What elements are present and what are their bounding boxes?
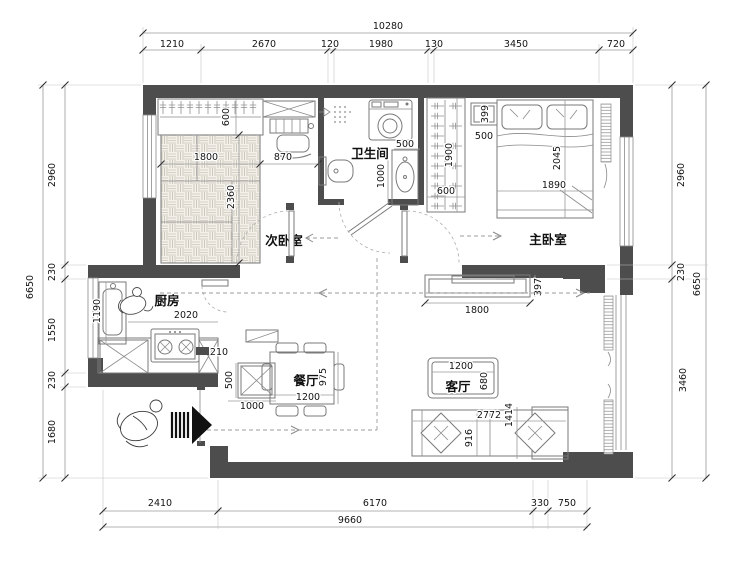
dim-top-4: 1980 bbox=[369, 39, 393, 50]
label-master-bedroom: 主卧室 bbox=[529, 232, 567, 247]
dim-right-total: 6650 bbox=[692, 272, 703, 296]
dim-bath-vanity: 1000 bbox=[376, 164, 387, 188]
vanity-sink bbox=[392, 150, 418, 205]
dim-left-2: 230 bbox=[47, 263, 58, 281]
dim-top-3: 120 bbox=[321, 39, 339, 50]
wall-shelf bbox=[246, 330, 278, 342]
person-figure bbox=[116, 400, 162, 447]
dim-right-2: 230 bbox=[676, 263, 687, 281]
dim-bottom-2: 6170 bbox=[363, 498, 387, 509]
toilet bbox=[319, 157, 353, 185]
master-bedroom: 399 500 2045 1890 主卧室 bbox=[471, 100, 611, 247]
dim-left-4: 230 bbox=[47, 371, 58, 389]
dim-top-6: 3450 bbox=[504, 39, 528, 50]
dim-dining-cabinet-width: 1000 bbox=[240, 401, 264, 412]
floor-plan-canvas: 10280 1210 2670 120 1980 130 3450 720 66… bbox=[0, 0, 740, 561]
dim-coffee-table-depth: 680 bbox=[479, 372, 490, 390]
dining-area: 500 1000 975 1200 餐厅 bbox=[224, 330, 344, 416]
dim-left-3: 1550 bbox=[47, 318, 58, 342]
dim-sofa-chaise: 1414 bbox=[504, 403, 515, 427]
dim-right-3: 3460 bbox=[678, 368, 689, 392]
dim-tatami-width: 1800 bbox=[194, 152, 218, 163]
dim-top-2: 2670 bbox=[252, 39, 276, 50]
balcony-sliding-door bbox=[604, 295, 626, 454]
dim-left-1: 2960 bbox=[47, 163, 58, 187]
window-left bbox=[143, 115, 156, 198]
master-bedroom-door bbox=[402, 211, 459, 263]
dim-left-5: 1680 bbox=[47, 420, 58, 444]
dim-bed-length: 2045 bbox=[552, 146, 563, 170]
closet-hangers bbox=[158, 99, 263, 135]
dim-right-1: 2960 bbox=[676, 163, 687, 187]
kitchen-sink bbox=[99, 282, 126, 344]
tv-stand bbox=[425, 275, 530, 297]
radiator bbox=[601, 104, 611, 188]
bathroom-door bbox=[339, 202, 392, 253]
dim-bottom-1: 2410 bbox=[148, 498, 172, 509]
dim-closet-depth: 600 bbox=[221, 108, 232, 126]
dim-tv-stand-width: 1800 bbox=[465, 305, 489, 316]
dim-top-5: 130 bbox=[425, 39, 443, 50]
dim-nightstand-width: 500 bbox=[475, 131, 493, 142]
entry-arrow-icon bbox=[172, 406, 212, 444]
cook-figure bbox=[118, 288, 153, 318]
dim-tatami-length: 2360 bbox=[226, 185, 237, 209]
dim-bottom-4: 750 bbox=[558, 498, 576, 509]
floor-plan-drawing: 10280 1210 2670 120 1980 130 3450 720 66… bbox=[0, 0, 740, 561]
gas-stove bbox=[151, 329, 199, 362]
entry bbox=[116, 400, 212, 447]
label-secondary-bedroom: 次卧室 bbox=[265, 233, 303, 248]
dim-bottom-3: 330 bbox=[531, 498, 549, 509]
dim-desk-width: 870 bbox=[274, 152, 292, 163]
dim-top-total: 10280 bbox=[373, 21, 403, 32]
hall-wardrobe: 1900 600 bbox=[427, 98, 465, 212]
dim-sofa-depth: 916 bbox=[464, 429, 475, 447]
dim-kitchen-end: 210 bbox=[210, 347, 228, 358]
washing-machine bbox=[369, 100, 412, 140]
dim-coffee-table-width: 1200 bbox=[449, 361, 473, 372]
label-dining: 餐厅 bbox=[292, 373, 319, 388]
living-room: 1800 397 1200 680 客厅 2772 916 1414 bbox=[412, 275, 568, 459]
dim-wardrobe-length: 1900 bbox=[444, 143, 455, 167]
dim-left-total: 6650 bbox=[25, 275, 36, 299]
dim-bottom-total: 9660 bbox=[338, 515, 362, 526]
label-bathroom: 卫生间 bbox=[351, 146, 389, 161]
kitchen-door bbox=[202, 280, 228, 312]
kitchen-end-cabinet bbox=[196, 347, 209, 355]
dim-dining-cabinet-depth: 500 bbox=[224, 371, 235, 389]
dim-nightstand-depth: 399 bbox=[480, 105, 491, 123]
dim-top-1: 1210 bbox=[160, 39, 184, 50]
dim-wardrobe-depth: 600 bbox=[437, 186, 455, 197]
dim-sofa-width: 2772 bbox=[477, 410, 501, 421]
dim-bed-width: 1890 bbox=[542, 180, 566, 191]
bathroom: 500 1000 卫生间 bbox=[319, 100, 420, 205]
dim-dining-table-width: 1200 bbox=[296, 392, 320, 403]
desk bbox=[263, 101, 315, 133]
dim-kitchen-counter: 1190 bbox=[92, 299, 103, 323]
window-master-bedroom bbox=[620, 137, 633, 246]
dining-cabinet bbox=[238, 363, 275, 398]
kitchen: 1190 2020 210 厨房 bbox=[92, 280, 228, 373]
secondary-bedroom: 600 1800 2360 870 次卧室 bbox=[158, 99, 322, 267]
dim-dining-table-length: 975 bbox=[318, 368, 329, 386]
dim-top-7: 720 bbox=[607, 39, 625, 50]
dim-bath-niche: 500 bbox=[396, 139, 414, 150]
label-living: 客厅 bbox=[444, 379, 471, 394]
label-kitchen: 厨房 bbox=[154, 293, 179, 308]
double-bed bbox=[497, 100, 593, 218]
dim-kitchen-width: 2020 bbox=[174, 310, 198, 321]
